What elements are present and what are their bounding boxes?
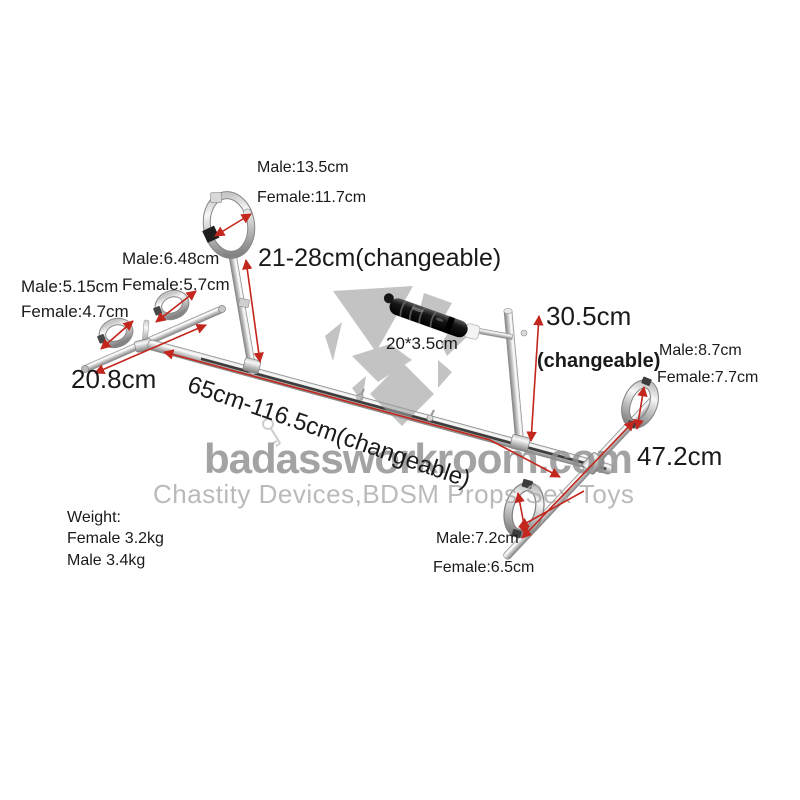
ankle-cuff-upper-male-label: Male:8.7cm: [659, 342, 742, 360]
ankle-cuff-upper-female-label: Female:7.7cm: [657, 369, 758, 387]
wrist-cuff-outer-male-label: Male:6.48cm: [122, 249, 219, 269]
wrist-cuff-outer-female-label: Female:5.7cm: [122, 275, 230, 295]
weight-female-label: Female 3.2kg: [67, 530, 164, 548]
wrist-crossbar-length-label: 20.8cm: [71, 365, 156, 395]
rear-post-height-label: 30.5cm: [546, 302, 631, 332]
product-diagram: badassworkroom.com Chastity Devices,BDSM…: [0, 0, 800, 800]
bar-screw: [427, 410, 434, 421]
collar-diameter-arrow: [215, 214, 251, 236]
neck-post: [228, 251, 261, 374]
wrist-cuff-inner-male-label: Male:5.15cm: [21, 277, 118, 297]
rear-post-arrow: [531, 316, 539, 441]
ankle-cuff-lower-male-label: Male:7.2cm: [436, 530, 519, 548]
wrist-cuff-inner-female-label: Female:4.7cm: [21, 302, 129, 322]
weight-title-label: Weight:: [67, 509, 121, 527]
ankle-cuff-upper: [619, 374, 663, 432]
ankle-cuff-lower-female-label: Female:6.5cm: [433, 559, 534, 577]
neck-post-height-label: 21-28cm(changeable): [258, 244, 501, 273]
watermark-tagline: Chastity Devices,BDSM Props Sex Toys: [153, 479, 634, 509]
rear-post-note-label: (changeable): [537, 350, 660, 373]
dildo-size-label: 20*3.5cm: [386, 334, 458, 354]
ankle-bar-length-label: 47.2cm: [637, 442, 722, 472]
collar-male-label: Male:13.5cm: [257, 159, 349, 177]
weight-male-label: Male 3.4kg: [67, 552, 145, 570]
product-photo-illustration: badassworkroom.com Chastity Devices,BDSM…: [0, 0, 800, 800]
dildo-attachment: [380, 292, 513, 340]
wrist-cuff-inner: [94, 318, 133, 351]
rear-post: [504, 308, 531, 452]
collar-female-label: Female:11.7cm: [257, 189, 366, 207]
